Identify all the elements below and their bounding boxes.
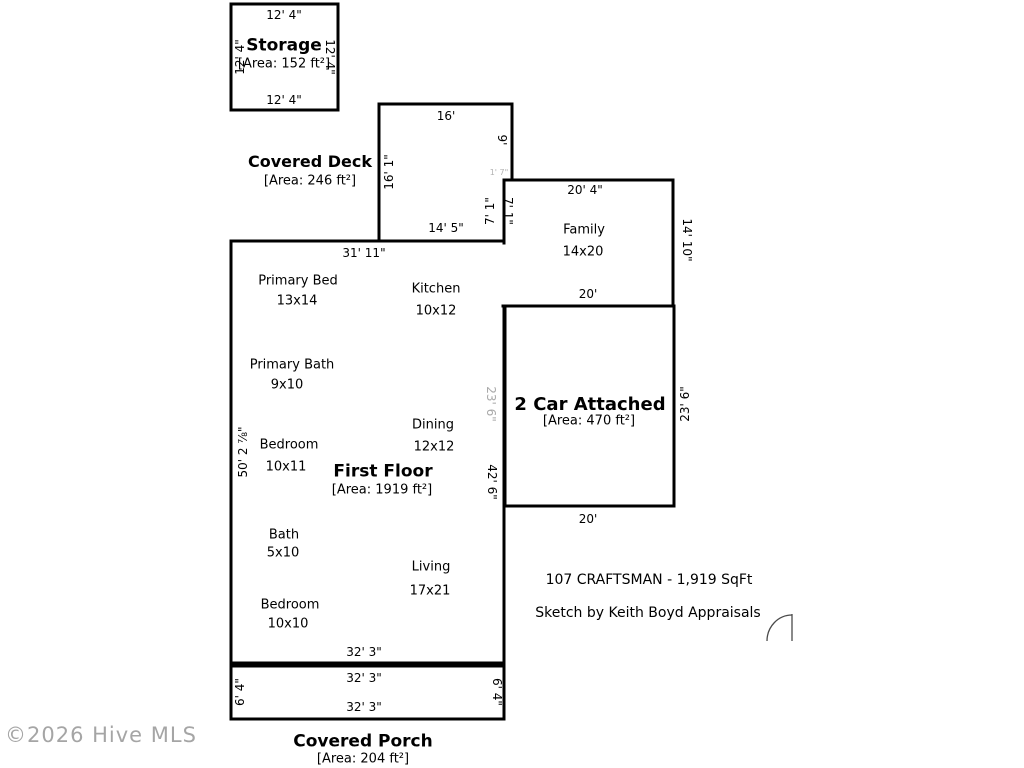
- bedroom1-label: Bedroom: [260, 439, 319, 452]
- dim-deck-left: 16' 1": [383, 154, 395, 190]
- dim-storage-bottom: 12' 4": [266, 94, 302, 106]
- dim-family-top: 20' 4": [567, 184, 603, 196]
- floorplan-walls: [0, 0, 1024, 768]
- dim-garage-left: 23' 6": [485, 386, 497, 422]
- bath-size: 5x10: [267, 547, 300, 560]
- garage-area: [Area: 470 ft²]: [543, 415, 635, 428]
- storage-label: Storage: [246, 38, 322, 55]
- dim-house-bottom: 32' 3": [346, 646, 382, 658]
- dim-family-right: 14' 10": [681, 218, 693, 261]
- dim-family-bottom: 20': [579, 288, 598, 300]
- dim-deck-right: 9': [496, 135, 508, 146]
- dining-size: 12x12: [414, 441, 455, 454]
- storage-area: [Area: 152 ft²]: [238, 58, 330, 71]
- dim-deck-notch: 1' 7": [490, 169, 509, 177]
- dim-house-top: 31' 11": [342, 247, 385, 259]
- kitchen-label: Kitchen: [412, 283, 461, 296]
- sketch-credit: Sketch by Keith Boyd Appraisals: [535, 606, 760, 620]
- primary-bed-size: 13x14: [277, 295, 318, 308]
- mls-watermark: ©2026 Hive MLS: [5, 723, 197, 747]
- dim-deck-top: 16': [437, 110, 456, 122]
- living-label: Living: [412, 561, 451, 574]
- dim-step-left: 7' 1": [484, 197, 496, 225]
- dim-porch-bottom: 32' 3": [346, 701, 382, 713]
- primary-bath-label: Primary Bath: [250, 359, 335, 372]
- bedroom1-size: 10x11: [266, 461, 307, 474]
- dining-label: Dining: [412, 419, 454, 432]
- first-floor-label: First Floor: [333, 464, 432, 481]
- deck-area: [Area: 246 ft²]: [264, 175, 356, 188]
- dim-storage-top: 12' 4": [266, 9, 302, 21]
- dim-house-right: 42' 6": [486, 464, 498, 500]
- property-title: 107 CRAFTSMAN - 1,919 SqFt: [546, 573, 753, 587]
- garage-label: 2 Car Attached: [514, 396, 665, 414]
- dim-step-right: 7' 1": [502, 197, 514, 225]
- kitchen-size: 10x12: [416, 305, 457, 318]
- porch-area: [Area: 204 ft²]: [317, 753, 409, 766]
- bath-label: Bath: [269, 529, 299, 542]
- dim-porch-right: 6' 4": [491, 678, 503, 706]
- floorplan-sketch: 12' 4" 12' 4" 12' 4" 12' 4" Storage [Are…: [0, 0, 1024, 768]
- dim-garage-right: 23' 6": [679, 386, 691, 422]
- dim-deck-bottom: 14' 5": [428, 222, 464, 234]
- bedroom2-label: Bedroom: [261, 599, 320, 612]
- living-size: 17x21: [410, 585, 451, 598]
- dim-porch-left: 6' 4": [234, 678, 246, 706]
- first-floor-area: [Area: 1919 ft²]: [332, 484, 432, 497]
- family-size: 14x20: [563, 246, 604, 259]
- deck-label: Covered Deck: [248, 154, 372, 170]
- porch-label: Covered Porch: [293, 734, 432, 751]
- dim-porch-top: 32' 3": [346, 672, 382, 684]
- primary-bath-size: 9x10: [271, 379, 304, 392]
- bedroom2-size: 10x10: [268, 618, 309, 631]
- family-label: Family: [563, 224, 605, 237]
- dim-house-left: 50' 2 ⅞": [237, 427, 249, 478]
- door-swing-icon: [767, 614, 792, 641]
- primary-bed-label: Primary Bed: [258, 275, 338, 288]
- dim-garage-bottom: 20': [579, 513, 598, 525]
